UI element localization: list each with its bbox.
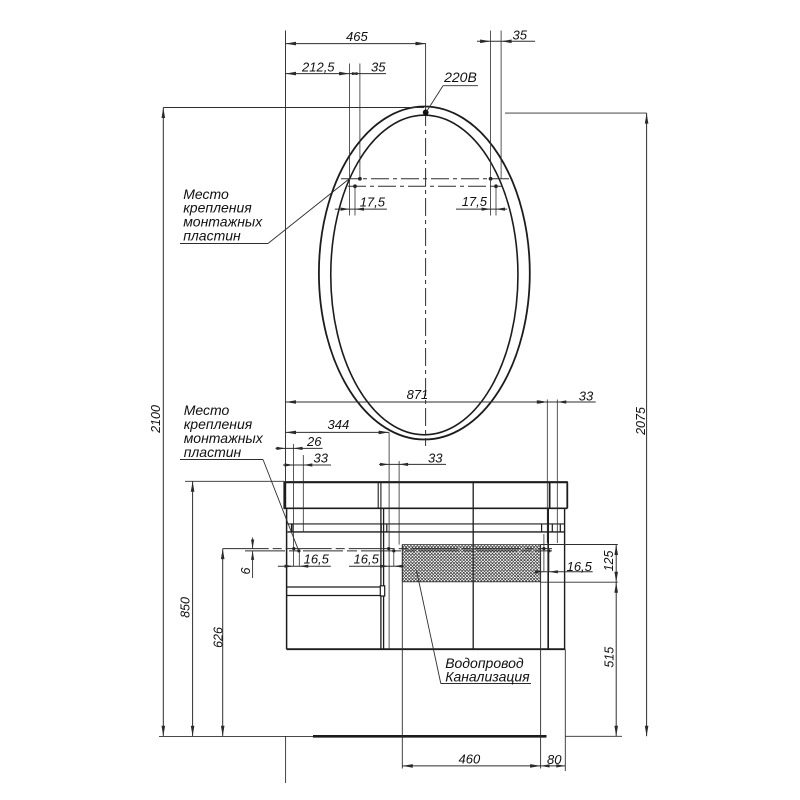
svg-text:871: 871 <box>407 387 429 402</box>
svg-text:Канализация: Канализация <box>445 669 530 685</box>
svg-text:2100: 2100 <box>149 405 163 434</box>
svg-text:пластин: пластин <box>183 227 241 243</box>
svg-text:17,5: 17,5 <box>462 194 488 209</box>
svg-text:33: 33 <box>428 451 443 466</box>
svg-text:16,5: 16,5 <box>567 559 593 574</box>
svg-text:33: 33 <box>314 451 329 466</box>
svg-text:515: 515 <box>602 647 616 668</box>
svg-text:626: 626 <box>212 627 226 648</box>
svg-text:33: 33 <box>579 388 594 403</box>
svg-text:6: 6 <box>239 567 253 574</box>
svg-text:17,5: 17,5 <box>360 194 386 209</box>
svg-text:850: 850 <box>179 597 193 618</box>
svg-text:344: 344 <box>328 417 350 432</box>
svg-text:26: 26 <box>306 434 322 449</box>
svg-text:16,5: 16,5 <box>304 552 330 567</box>
svg-text:2075: 2075 <box>634 407 648 436</box>
svg-text:80: 80 <box>547 752 562 767</box>
svg-text:35: 35 <box>513 27 528 42</box>
svg-text:460: 460 <box>459 751 481 766</box>
svg-text:212,5: 212,5 <box>301 59 335 74</box>
svg-text:465: 465 <box>346 29 368 44</box>
svg-text:16,5: 16,5 <box>354 552 380 567</box>
svg-text:125: 125 <box>602 551 616 572</box>
svg-text:пластин: пластин <box>184 444 242 460</box>
svg-text:220В: 220В <box>443 69 477 85</box>
svg-text:35: 35 <box>371 59 386 74</box>
